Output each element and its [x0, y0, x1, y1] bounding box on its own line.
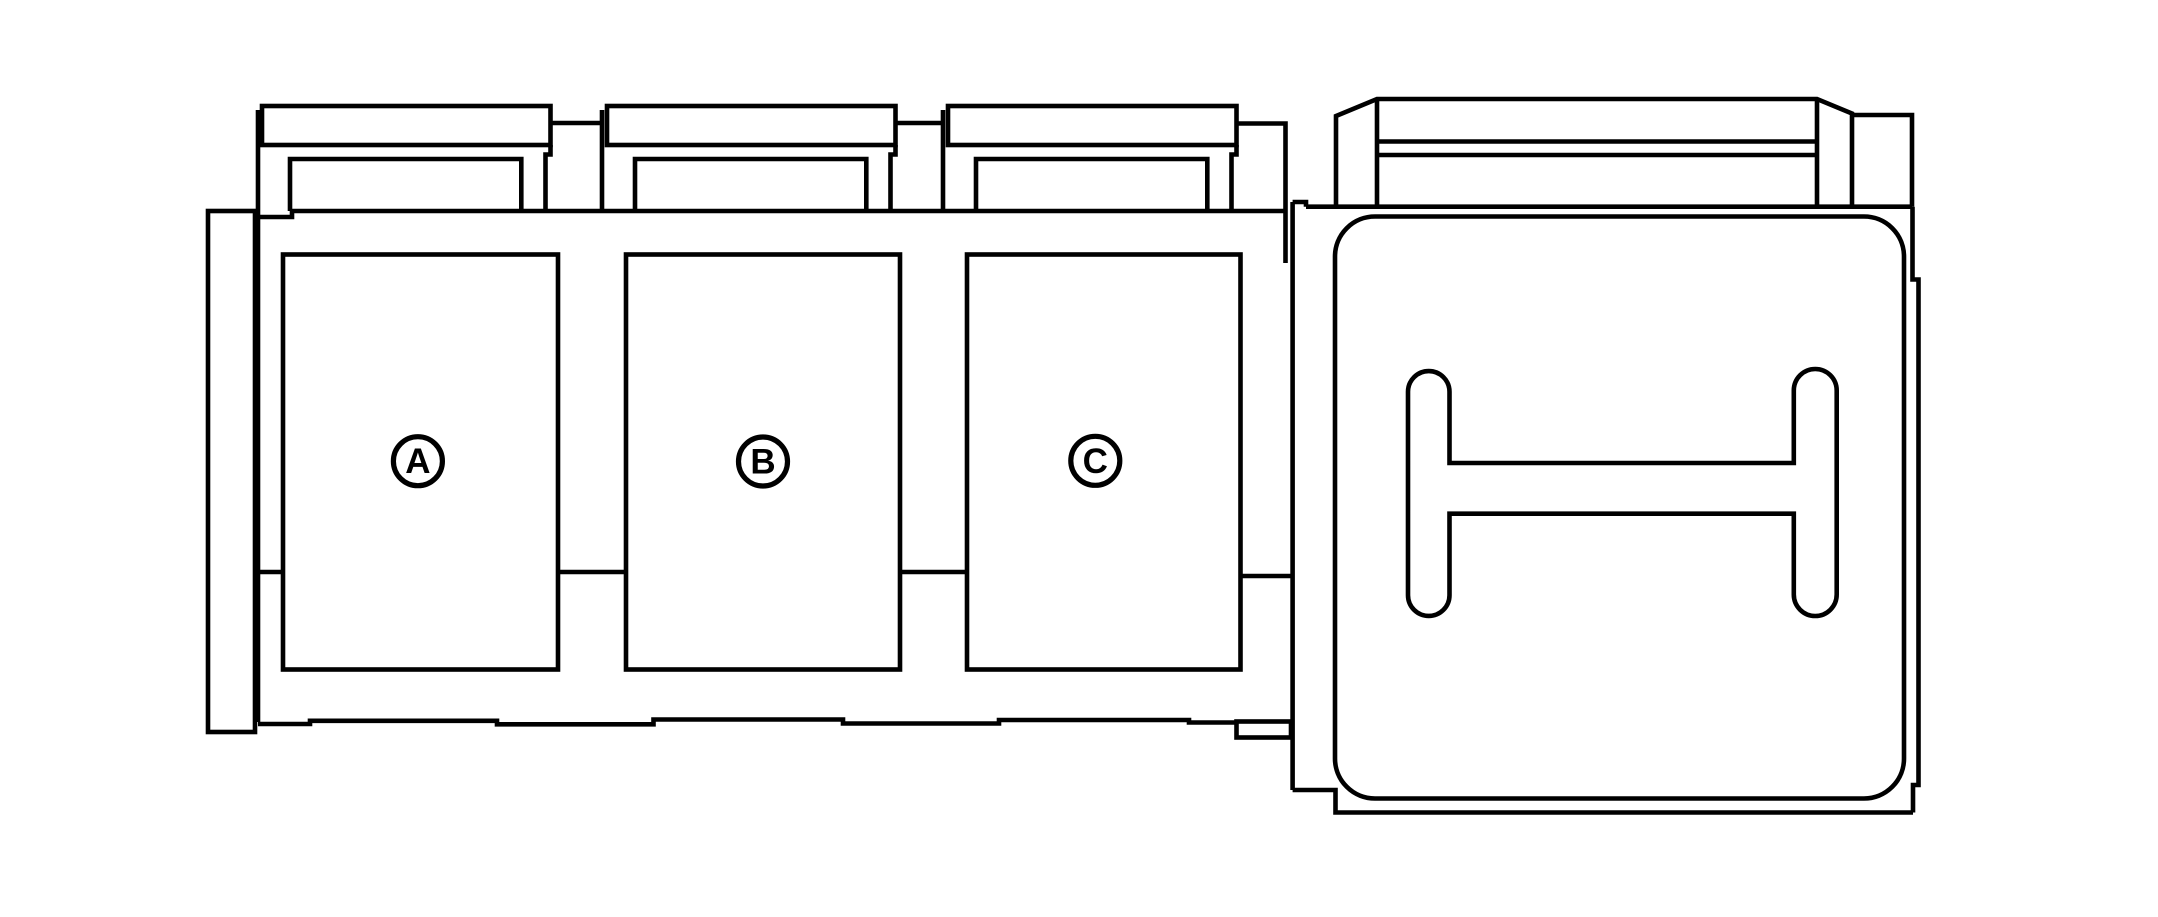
svg-text:B: B [750, 443, 775, 482]
svg-text:A: A [405, 442, 430, 481]
svg-text:C: C [1083, 442, 1108, 481]
